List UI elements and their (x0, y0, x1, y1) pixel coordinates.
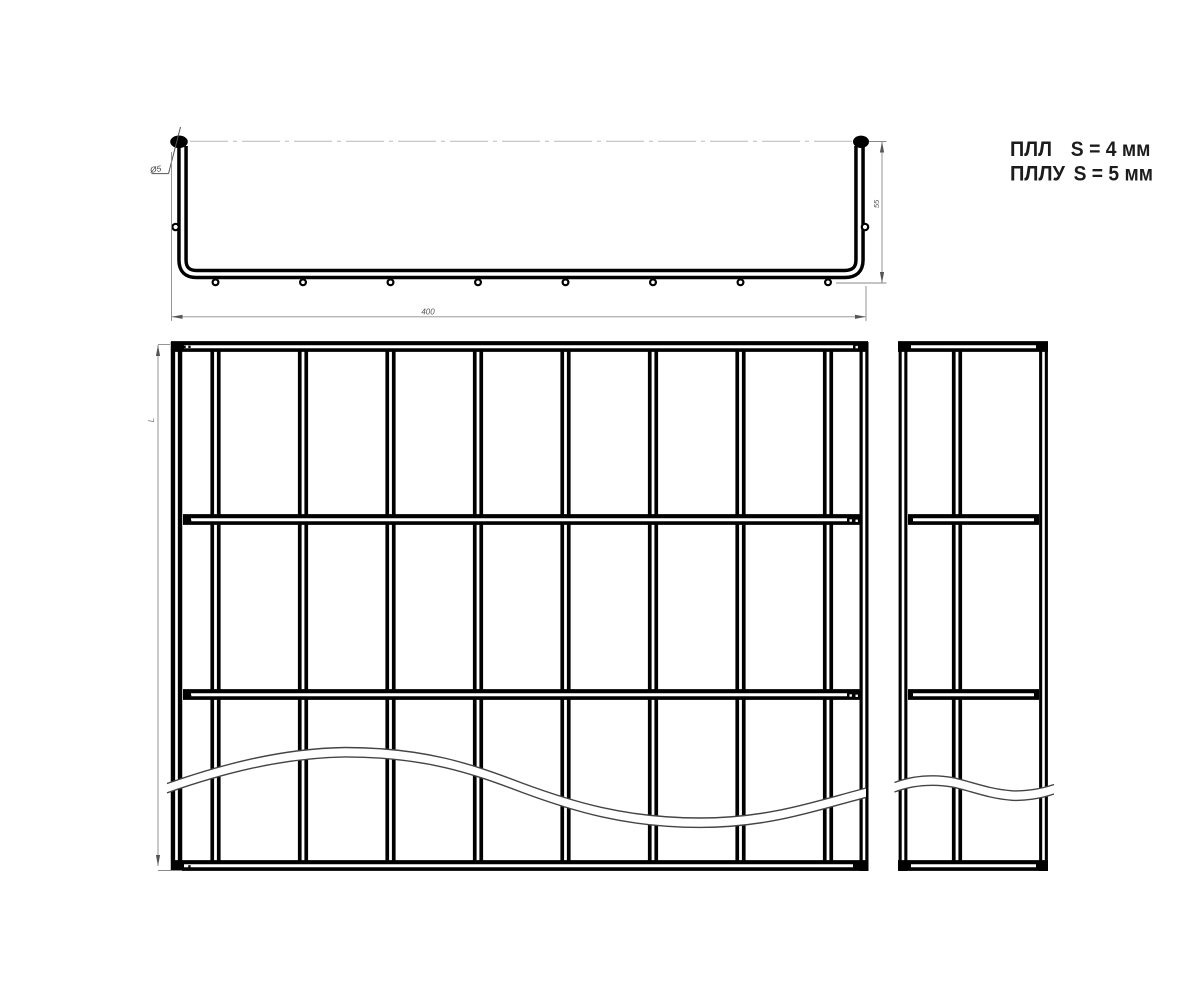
svg-text:Ø5: Ø5 (149, 164, 163, 175)
svg-text:S = 5 мм: S = 5 мм (1074, 162, 1153, 186)
svg-text:S = 4 мм: S = 4 мм (1071, 137, 1151, 161)
svg-text:L: L (147, 418, 156, 422)
svg-text:ПЛЛ: ПЛЛ (1010, 137, 1052, 161)
svg-text:55: 55 (872, 199, 881, 208)
svg-text:400: 400 (421, 308, 435, 317)
svg-text:ПЛЛУ: ПЛЛУ (1010, 162, 1066, 186)
